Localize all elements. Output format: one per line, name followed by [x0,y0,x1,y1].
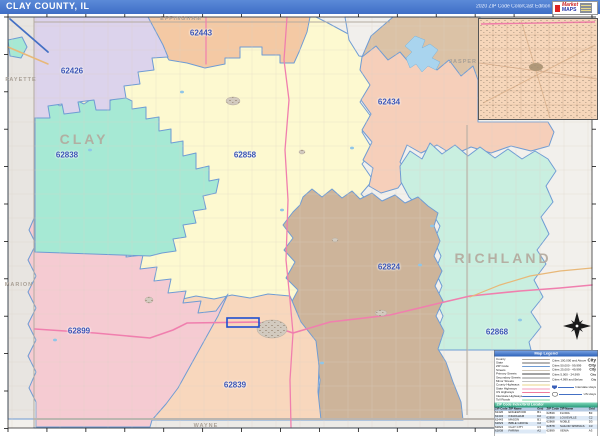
zip-index-row: 62838FARINAA2 [495,430,547,434]
zip-index-row: 62899XENIAA3 [546,429,598,433]
legend-highway-sample: US Hwys [552,391,596,398]
logo-flag-icon [555,5,560,12]
zip-index-group: ZIP CodeZIP NameGrid62839FLORAB362858LOU… [546,407,598,433]
map-page: CLAY COUNTY, IL 2020 ZIP Code ColorCast … [0,0,600,436]
edition-label: 2020 ZIP Code ColorCast Edition [476,4,550,9]
map-title: CLAY COUNTY, IL [6,1,90,11]
marketmaps-logo: MarketMAPS [552,1,598,15]
zip-index-table: ZIP CodeZIP NameGrid62426EDGEWOODB162434… [495,407,598,433]
logo-sub-box [580,3,592,13]
city-inset-map [478,18,598,120]
oval-icon [552,392,558,397]
legend-highway-sample: Interstate Hwys [552,384,596,391]
logo-line2: MAPS [562,8,578,13]
title-bar: CLAY COUNTY, IL 2020 ZIP Code ColorCast … [0,0,600,14]
zip-index-row: 62878SAILOR SPRINGSC3 [546,425,598,429]
map-canvas[interactable]: CLAYRICHLANDEFFINGHAMJASPERFAYETTEMARION… [0,14,600,436]
legend-panel: Map Legend CountyStateZIP CodeStreetsPri… [494,350,598,436]
legend-city-list: Cities 100,000 and AboveCityCities 50,00… [550,358,596,402]
legend-row: Toll Roads [496,398,550,402]
legend-symbol-list: CountyStateZIP CodeStreetsPrimary Street… [496,358,550,402]
zip-index-group: ZIP CodeZIP NameGrid62426EDGEWOODB162434… [495,407,547,433]
shield-icon [552,385,557,389]
